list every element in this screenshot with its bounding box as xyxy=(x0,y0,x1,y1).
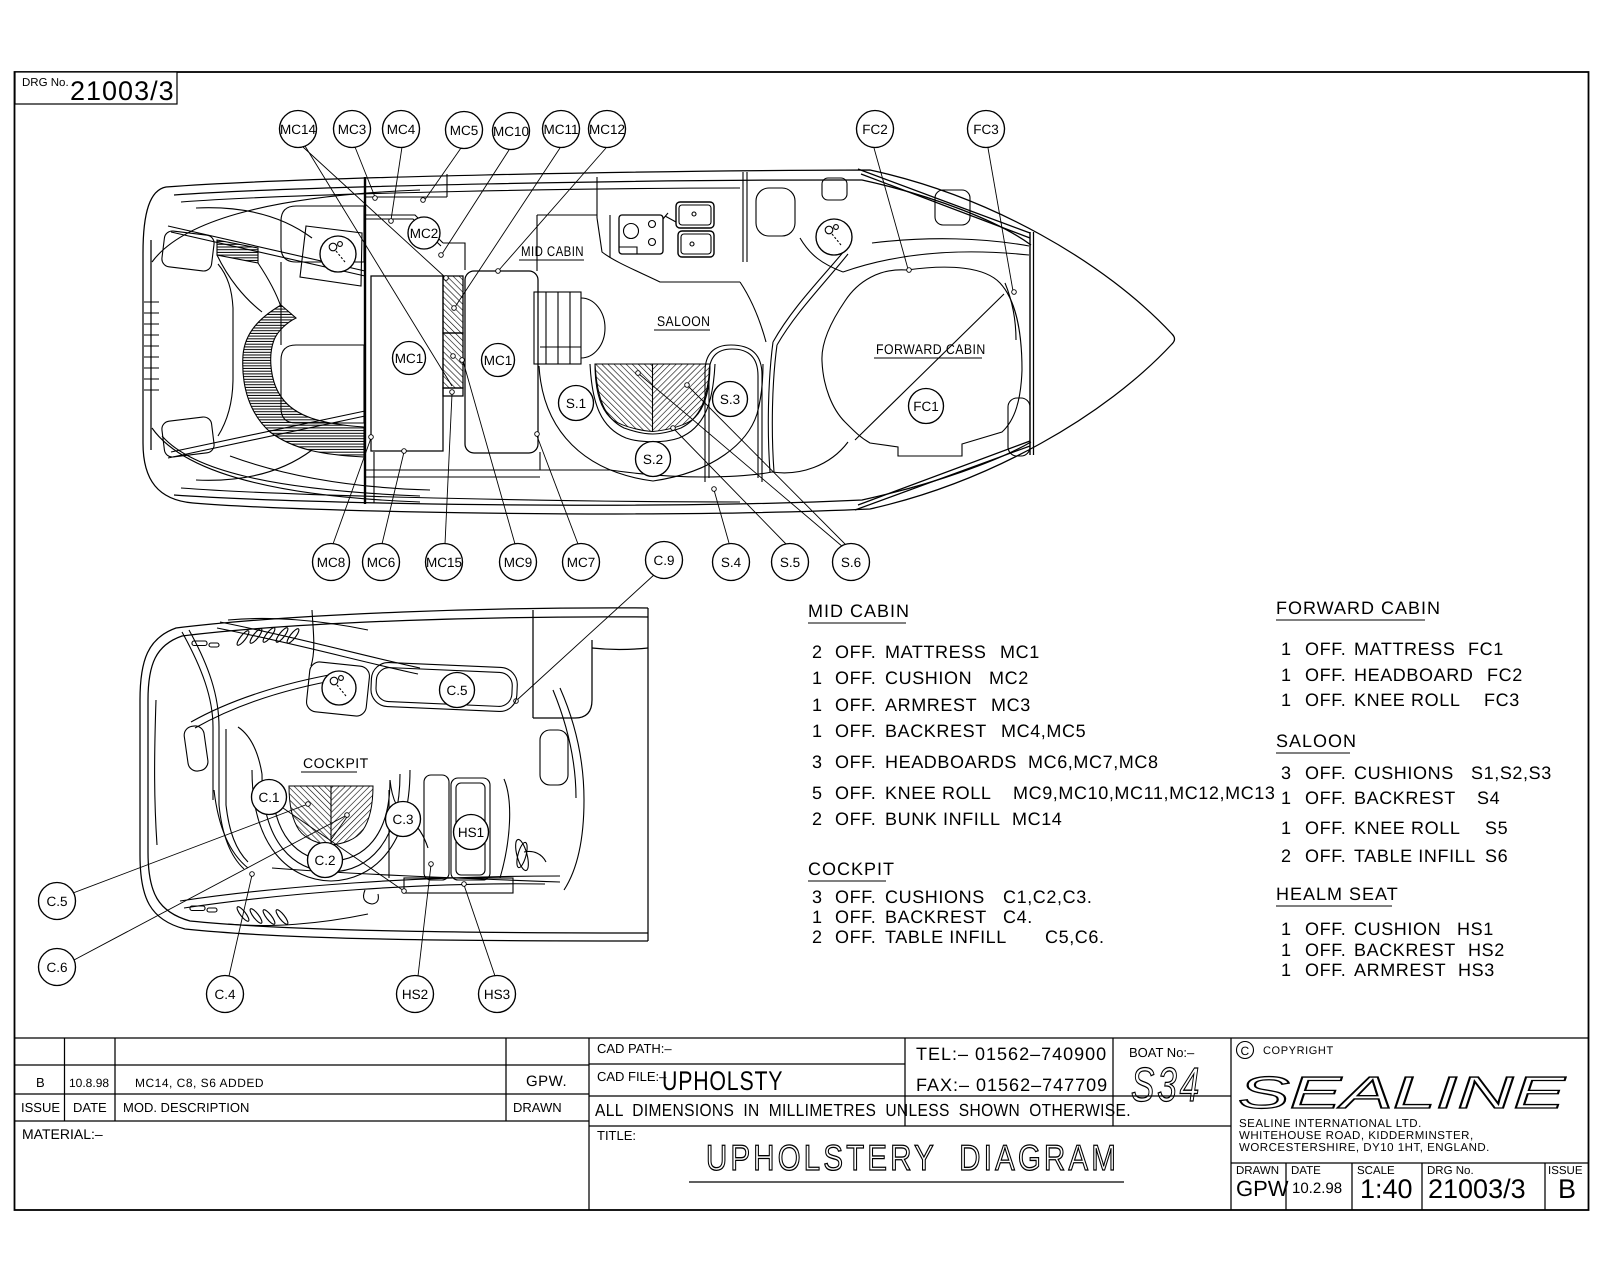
svg-text:3: 3 xyxy=(1281,763,1292,783)
svg-text:1: 1 xyxy=(812,907,823,927)
svg-text:HEADBOARDS: HEADBOARDS xyxy=(885,752,1017,772)
svg-text:C.5: C.5 xyxy=(446,683,467,698)
svg-text:HS1: HS1 xyxy=(1457,919,1494,939)
svg-text:OFF.: OFF. xyxy=(1305,788,1346,808)
svg-text:C.3: C.3 xyxy=(392,812,413,827)
svg-text:1: 1 xyxy=(1281,788,1292,808)
svg-text:SEALINE: SEALINE xyxy=(1238,1067,1567,1118)
svg-text:MC7: MC7 xyxy=(567,555,596,570)
svg-text:OFF.: OFF. xyxy=(835,721,876,741)
svg-text:C: C xyxy=(1241,1044,1250,1058)
svg-text:MC6: MC6 xyxy=(367,555,396,570)
svg-text:TITLE:: TITLE: xyxy=(597,1128,636,1143)
svg-text:DATE: DATE xyxy=(73,1100,107,1115)
svg-text:COPYRIGHT: COPYRIGHT xyxy=(1263,1045,1334,1057)
svg-text:10.8.98: 10.8.98 xyxy=(69,1076,109,1090)
svg-text:MC8: MC8 xyxy=(317,555,346,570)
svg-text:TABLE INFILL: TABLE INFILL xyxy=(1354,846,1476,866)
svg-text:MC9,MC10,MC11,MC12,MC13: MC9,MC10,MC11,MC12,MC13 xyxy=(1013,783,1276,803)
svg-text:MC14, C8, S6 ADDED: MC14, C8, S6 ADDED xyxy=(135,1076,264,1090)
svg-text:OFF.: OFF. xyxy=(835,783,876,803)
svg-text:2: 2 xyxy=(812,927,823,947)
svg-text:5: 5 xyxy=(812,783,823,803)
svg-text:C4.: C4. xyxy=(1003,907,1033,927)
svg-text:FC1: FC1 xyxy=(913,399,939,414)
svg-text:1: 1 xyxy=(1281,818,1292,838)
svg-text:WORCESTERSHIRE, DY10 1HT, E: WORCESTERSHIRE, DY10 1HT, ENGLAND. xyxy=(1239,1142,1490,1154)
svg-text:KNEE ROLL: KNEE ROLL xyxy=(885,783,991,803)
svg-text:OFF.: OFF. xyxy=(1305,960,1346,980)
svg-text:FC3: FC3 xyxy=(973,122,999,137)
svg-text:MC1: MC1 xyxy=(1000,642,1040,662)
svg-text:C.5: C.5 xyxy=(46,894,67,909)
svg-text:SALOON: SALOON xyxy=(657,313,710,329)
svg-text:HEADBOARD: HEADBOARD xyxy=(1354,665,1473,685)
svg-text:HS2: HS2 xyxy=(402,987,428,1002)
svg-text:MC3: MC3 xyxy=(338,122,367,137)
svg-text:C.4: C.4 xyxy=(214,987,236,1002)
svg-text:ARMREST: ARMREST xyxy=(1354,960,1446,980)
svg-text:CUSHIONS: CUSHIONS xyxy=(885,887,985,907)
svg-text:MATTRESS: MATTRESS xyxy=(885,642,986,662)
svg-text:MC2: MC2 xyxy=(989,668,1029,688)
svg-text:MC5: MC5 xyxy=(450,123,479,138)
svg-text:S.5: S.5 xyxy=(780,555,800,570)
svg-text:OFF.: OFF. xyxy=(1305,846,1346,866)
svg-text:1: 1 xyxy=(1281,940,1292,960)
svg-text:MID CABIN: MID CABIN xyxy=(521,243,584,259)
svg-text:B: B xyxy=(36,1075,45,1090)
svg-text:C.1: C.1 xyxy=(258,790,279,805)
svg-text:OFF.: OFF. xyxy=(835,907,876,927)
svg-text:OFF.: OFF. xyxy=(835,668,876,688)
svg-text:1: 1 xyxy=(812,721,823,741)
svg-text:BACKREST: BACKREST xyxy=(1354,940,1456,960)
svg-text:HS2: HS2 xyxy=(1468,940,1505,960)
svg-text:OFF.: OFF. xyxy=(835,809,876,829)
svg-text:UPHOLSTERY DIAGRAM: UPHOLSTERY DIAGRAM xyxy=(706,1137,1119,1178)
svg-text:MC10: MC10 xyxy=(493,124,529,139)
svg-text:MC1: MC1 xyxy=(395,351,424,366)
svg-text:HS3: HS3 xyxy=(1458,960,1495,980)
svg-text:MC4: MC4 xyxy=(387,122,416,137)
svg-text:C.6: C.6 xyxy=(46,960,67,975)
svg-text:MC14: MC14 xyxy=(280,122,317,137)
svg-text:MC15: MC15 xyxy=(426,555,462,570)
svg-text:GPW.: GPW. xyxy=(526,1073,567,1090)
svg-text:C5,C6.: C5,C6. xyxy=(1045,927,1105,947)
svg-text:COCKPIT: COCKPIT xyxy=(303,755,369,771)
svg-text:2: 2 xyxy=(1281,846,1292,866)
svg-text:CUSHIONS: CUSHIONS xyxy=(1354,763,1454,783)
svg-text:BACKREST: BACKREST xyxy=(885,721,987,741)
svg-text:C.2: C.2 xyxy=(314,853,335,868)
svg-text:1: 1 xyxy=(1281,919,1292,939)
svg-text:FC1: FC1 xyxy=(1468,639,1504,659)
svg-text:S5: S5 xyxy=(1485,818,1508,838)
svg-text:21003/3: 21003/3 xyxy=(1428,1174,1526,1204)
svg-text:3: 3 xyxy=(812,887,823,907)
svg-text:FC2: FC2 xyxy=(1487,665,1523,685)
svg-text:GPW: GPW xyxy=(1236,1176,1289,1201)
svg-text:S.6: S.6 xyxy=(841,555,861,570)
svg-text:S.2: S.2 xyxy=(643,452,663,467)
svg-text:C.9: C.9 xyxy=(653,553,674,568)
svg-text:BACKREST: BACKREST xyxy=(885,907,987,927)
svg-text:ISSUE: ISSUE xyxy=(21,1100,60,1115)
svg-text:FC2: FC2 xyxy=(862,122,888,137)
svg-text:FC3: FC3 xyxy=(1484,690,1520,710)
svg-text:10.2.98: 10.2.98 xyxy=(1292,1180,1342,1197)
svg-text:HS3: HS3 xyxy=(484,987,510,1002)
svg-text:S6: S6 xyxy=(1485,846,1508,866)
svg-text:MC12: MC12 xyxy=(589,122,625,137)
svg-text:DRG No.: DRG No. xyxy=(22,77,69,89)
svg-text:OFF.: OFF. xyxy=(1305,919,1346,939)
svg-text:SALOON: SALOON xyxy=(1276,731,1357,751)
svg-text:OFF.: OFF. xyxy=(835,752,876,772)
svg-text:S.3: S.3 xyxy=(720,392,740,407)
svg-text:FORWARD CABIN: FORWARD CABIN xyxy=(1276,598,1441,618)
svg-text:OFF.: OFF. xyxy=(1305,690,1346,710)
svg-text:MC14: MC14 xyxy=(1012,809,1062,829)
svg-text:S4: S4 xyxy=(1477,788,1500,808)
svg-text:MATERIAL:–: MATERIAL:– xyxy=(22,1126,103,1142)
svg-text:OFF.: OFF. xyxy=(1305,639,1346,659)
svg-text:1: 1 xyxy=(1281,690,1292,710)
svg-text:MC1: MC1 xyxy=(484,353,513,368)
svg-text:21003/3: 21003/3 xyxy=(70,76,175,106)
svg-text:FAX:– 01562–747709: FAX:– 01562–747709 xyxy=(916,1075,1108,1095)
svg-text:HEALM SEAT: HEALM SEAT xyxy=(1276,884,1399,904)
svg-text:CUSHION: CUSHION xyxy=(1354,919,1441,939)
svg-text:MC2: MC2 xyxy=(410,226,439,241)
svg-text:B: B xyxy=(1558,1174,1576,1204)
svg-text:SEALINE INTERNATIONAL LTD.: SEALINE INTERNATIONAL LTD. xyxy=(1239,1118,1422,1130)
svg-text:KNEE ROLL: KNEE ROLL xyxy=(1354,818,1460,838)
svg-text:S.4: S.4 xyxy=(721,555,742,570)
svg-text:CAD FILE:–: CAD FILE:– xyxy=(597,1069,667,1084)
svg-text:1: 1 xyxy=(1281,665,1292,685)
svg-text:3: 3 xyxy=(812,752,823,772)
svg-text:KNEE ROLL: KNEE ROLL xyxy=(1354,690,1460,710)
svg-text:HS1: HS1 xyxy=(458,825,484,840)
svg-text:1: 1 xyxy=(812,668,823,688)
svg-text:MC6,MC7,MC8: MC6,MC7,MC8 xyxy=(1028,752,1159,772)
svg-text:UPHOLSTY: UPHOLSTY xyxy=(662,1066,783,1096)
svg-text:1: 1 xyxy=(1281,639,1292,659)
svg-text:OFF.: OFF. xyxy=(835,642,876,662)
svg-text:WHITEHOUSE ROAD, KIDDERMINST: WHITEHOUSE ROAD, KIDDERMINSTER, xyxy=(1239,1130,1474,1142)
svg-text:OFF.: OFF. xyxy=(835,695,876,715)
svg-text:OFF.: OFF. xyxy=(835,887,876,907)
svg-text:BUNK INFILL: BUNK INFILL xyxy=(885,809,1001,829)
svg-text:COCKPIT: COCKPIT xyxy=(808,859,895,879)
svg-text:S1,S2,S3: S1,S2,S3 xyxy=(1471,763,1552,783)
svg-text:OFF.: OFF. xyxy=(1305,818,1346,838)
svg-text:OFF.: OFF. xyxy=(1305,940,1346,960)
svg-text:DRAWN: DRAWN xyxy=(513,1100,562,1115)
svg-text:FORWARD CABIN: FORWARD CABIN xyxy=(876,341,986,357)
svg-text:TABLE INFILL: TABLE INFILL xyxy=(885,927,1007,947)
svg-text:DATE: DATE xyxy=(1291,1165,1321,1177)
svg-text:2: 2 xyxy=(812,642,823,662)
svg-text:C1,C2,C3.: C1,C2,C3. xyxy=(1003,887,1092,907)
svg-text:MC4,MC5: MC4,MC5 xyxy=(1001,721,1086,741)
svg-text:MC9: MC9 xyxy=(504,555,533,570)
svg-text:ALL DIMENSIONS IN MILLIMETR: ALL DIMENSIONS IN MILLIMETRES UNLESS SHO… xyxy=(595,1100,1131,1120)
svg-text:TEL:– 01562–740900: TEL:– 01562–740900 xyxy=(916,1044,1107,1064)
svg-text:S34: S34 xyxy=(1131,1059,1202,1112)
svg-text:OFF.: OFF. xyxy=(1305,665,1346,685)
svg-text:ARMREST: ARMREST xyxy=(885,695,977,715)
svg-text:MID CABIN: MID CABIN xyxy=(808,601,910,621)
svg-text:OFF.: OFF. xyxy=(835,927,876,947)
svg-text:CAD PATH:–: CAD PATH:– xyxy=(597,1041,672,1056)
svg-text:MC3: MC3 xyxy=(991,695,1031,715)
svg-text:1:40: 1:40 xyxy=(1360,1174,1413,1204)
svg-text:MOD. DESCRIPTION: MOD. DESCRIPTION xyxy=(123,1100,249,1115)
svg-text:1: 1 xyxy=(812,695,823,715)
svg-text:MC11: MC11 xyxy=(543,122,578,137)
svg-text:CUSHION: CUSHION xyxy=(885,668,972,688)
svg-text:1: 1 xyxy=(1281,960,1292,980)
svg-text:OFF.: OFF. xyxy=(1305,763,1346,783)
svg-text:2: 2 xyxy=(812,809,823,829)
svg-text:BACKREST: BACKREST xyxy=(1354,788,1456,808)
svg-text:MATTRESS: MATTRESS xyxy=(1354,639,1455,659)
svg-text:BOAT No:–: BOAT No:– xyxy=(1129,1045,1195,1060)
svg-text:S.1: S.1 xyxy=(566,396,586,411)
